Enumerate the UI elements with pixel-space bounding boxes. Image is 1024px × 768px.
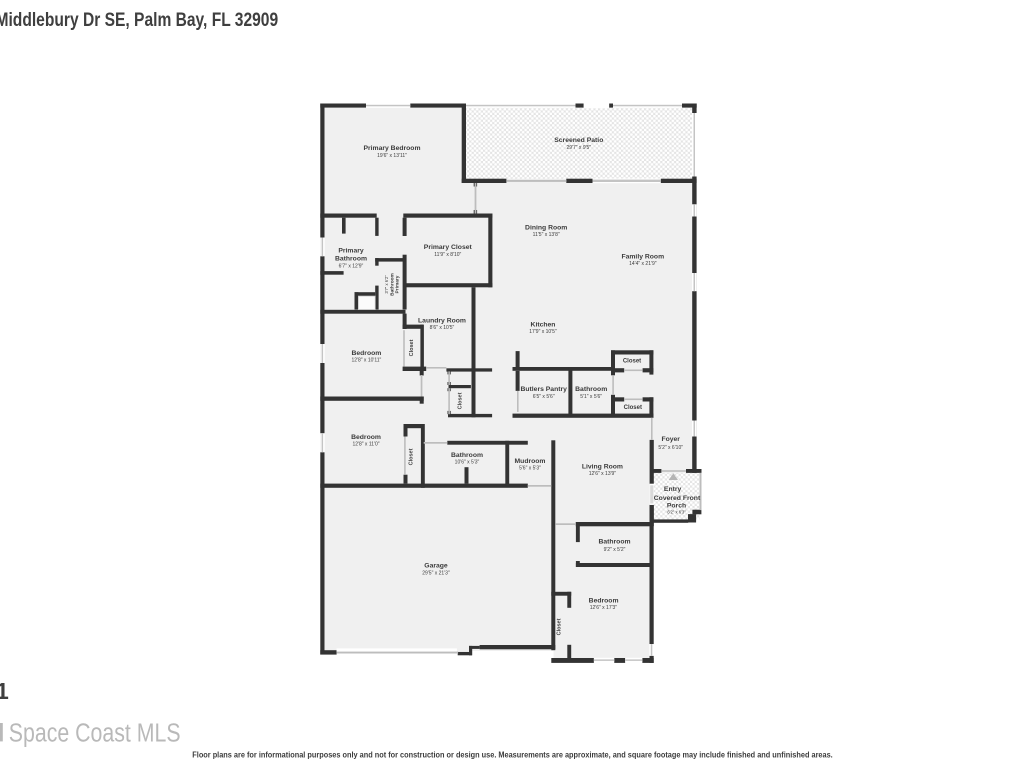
svg-text:Foyer: Foyer <box>661 436 680 443</box>
svg-text:5'2" x 6'10": 5'2" x 6'10" <box>658 445 683 451</box>
svg-text:10'6" x 5'3": 10'6" x 5'3" <box>455 460 480 466</box>
svg-text:Primary: Primary <box>338 247 364 254</box>
svg-text:Bathroom: Bathroom <box>335 256 367 263</box>
svg-text:11'5" x 13'8": 11'5" x 13'8" <box>533 232 560 238</box>
svg-text:Primary Closet: Primary Closet <box>424 244 473 251</box>
svg-text:12'6" x 17'3": 12'6" x 17'3" <box>590 605 618 611</box>
svg-text:Covered Front: Covered Front <box>654 495 701 502</box>
svg-text:9'2" x 5'2": 9'2" x 5'2" <box>604 547 626 553</box>
svg-text:Bedroom: Bedroom <box>589 598 619 605</box>
svg-text:Primary Bedroom: Primary Bedroom <box>363 145 420 152</box>
svg-text:12'8" x 11'0": 12'8" x 11'0" <box>352 442 379 448</box>
svg-text:Mudroom: Mudroom <box>515 458 546 465</box>
svg-text:Floor plans are for informatio: Floor plans are for informational purpos… <box>192 750 832 759</box>
svg-text:Closet: Closet <box>457 392 463 409</box>
svg-text:Laundry Room: Laundry Room <box>418 317 466 324</box>
svg-text:Porch: Porch <box>667 503 686 510</box>
svg-text:Entry: Entry <box>664 486 682 493</box>
svg-text:6'2" x 6'3": 6'2" x 6'3" <box>667 510 686 515</box>
svg-text:Living Room: Living Room <box>582 463 623 470</box>
svg-text:14'4" x 21'9": 14'4" x 21'9" <box>629 261 657 267</box>
svg-text:Garage: Garage <box>424 562 448 569</box>
svg-text:17'9" x 10'5": 17'9" x 10'5" <box>529 329 557 335</box>
svg-text:3'7" x 6'2": 3'7" x 6'2" <box>384 275 389 294</box>
svg-text:Closet: Closet <box>409 448 415 465</box>
svg-text:Space Coast MLS: Space Coast MLS <box>9 718 181 748</box>
svg-text:Bathroom: Bathroom <box>575 386 607 393</box>
svg-text:6'5" x 5'6": 6'5" x 5'6" <box>533 394 555 400</box>
svg-text:1: 1 <box>0 678 9 704</box>
svg-text:Dining Room: Dining Room <box>525 225 567 232</box>
svg-text:29'7" x 9'5": 29'7" x 9'5" <box>566 145 591 151</box>
svg-text:12'8" x 10'11": 12'8" x 10'11" <box>351 357 381 363</box>
svg-text:Butlers Pantry: Butlers Pantry <box>520 386 567 393</box>
svg-text:12'6" x 13'9": 12'6" x 13'9" <box>589 471 617 477</box>
svg-text:8'6" x 10'5": 8'6" x 10'5" <box>430 325 455 331</box>
svg-text:11'9" x 8'10": 11'9" x 8'10" <box>434 252 461 258</box>
svg-text:Bedroom: Bedroom <box>351 350 381 357</box>
svg-text:Closet: Closet <box>624 405 642 411</box>
svg-text:Closet: Closet <box>409 339 415 356</box>
svg-text:Bathroom: Bathroom <box>451 452 483 459</box>
svg-text:Middlebury Dr SE, Palm Bay, FL: Middlebury Dr SE, Palm Bay, FL 32909 <box>0 9 278 31</box>
svg-text:5'6" x 5'3": 5'6" x 5'3" <box>519 465 541 471</box>
svg-text:5'1" x 5'6": 5'1" x 5'6" <box>580 394 602 400</box>
svg-text:Primary: Primary <box>395 275 401 293</box>
svg-text:Closet: Closet <box>623 359 641 365</box>
svg-text:Bathroom: Bathroom <box>389 273 395 296</box>
svg-text:Bedroom: Bedroom <box>351 434 381 441</box>
svg-text:Bathroom: Bathroom <box>598 539 630 546</box>
svg-text:Kitchen: Kitchen <box>531 321 556 328</box>
svg-text:29'5" x 21'3": 29'5" x 21'3" <box>422 570 450 576</box>
svg-text:Family Room: Family Room <box>621 253 664 260</box>
svg-text:6'7" x 12'9": 6'7" x 12'9" <box>339 263 364 269</box>
svg-text:Closet: Closet <box>557 618 563 635</box>
svg-text:Screened Patio: Screened Patio <box>554 137 603 144</box>
svg-text:19'6" x 13'11": 19'6" x 13'11" <box>377 153 407 159</box>
